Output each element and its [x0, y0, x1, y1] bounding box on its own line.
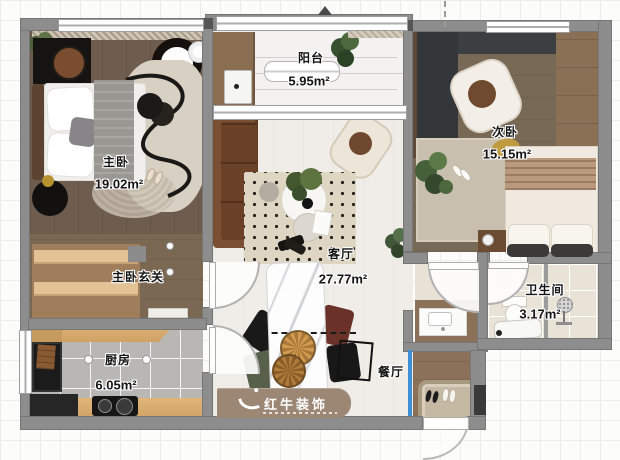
- drying-rack-line: [255, 57, 397, 58]
- wall-bottom-entry: [467, 416, 486, 430]
- burner-icon: [98, 399, 112, 413]
- label-master-bedroom-name: 主卧: [103, 156, 129, 168]
- shower-base: [556, 322, 572, 325]
- hall-cabinet: [128, 246, 146, 262]
- door-leaf: [209, 327, 216, 374]
- window-master: [58, 19, 204, 32]
- label-bathroom-name: 卫生间: [525, 284, 564, 296]
- stool: [137, 93, 163, 119]
- plant: [327, 32, 363, 72]
- label-kitchen-area: 6.05m²: [95, 379, 136, 392]
- wall-mid-left-lower: [202, 372, 213, 418]
- cutting-board: [36, 344, 56, 369]
- round-cushion: [468, 80, 496, 108]
- label-dining-room-name: 餐厅: [378, 366, 404, 378]
- wardrobe-wood: [556, 32, 598, 152]
- armchair-cushion: [349, 132, 372, 155]
- wall-bath-bottom: [477, 338, 612, 350]
- downlight-icon: [84, 355, 93, 364]
- label-living-room-area: 27.77m²: [319, 273, 367, 286]
- label-second-bedroom-area: 15.15m²: [483, 148, 531, 161]
- drain-dot: [496, 330, 502, 336]
- floor-plan: 主卧 19.02m² 阳台 5.95m² 次卧 15.15m² 客厅 27.77…: [0, 0, 620, 460]
- gold-decor: [42, 175, 54, 187]
- faucet-icon: [441, 327, 445, 331]
- curtain: [348, 30, 404, 38]
- kitchen-appliance: [30, 394, 78, 418]
- blanket-folds: [505, 158, 596, 190]
- downlight-icon: [142, 355, 151, 364]
- watermark-brand-text: 红牛装饰: [264, 394, 328, 413]
- wall-mid-left-upper: [202, 18, 213, 262]
- sink-basin: [428, 312, 452, 326]
- cup: [482, 234, 494, 246]
- wall-hall-kitchen: [28, 318, 207, 330]
- wall-second-bedroom-left: [403, 20, 413, 252]
- downlight-icon: [166, 242, 174, 250]
- door-leaf: [423, 417, 469, 430]
- plant: [413, 150, 457, 204]
- label-second-bedroom-name: 次卧: [492, 126, 518, 138]
- pendant-lamp-icon: [272, 354, 306, 388]
- label-balcony-area: 5.95m²: [288, 75, 329, 88]
- label-living-room-name: 客厅: [328, 248, 354, 260]
- downlight-icon: [166, 268, 174, 276]
- dining-chair-frame: [336, 340, 373, 382]
- slippers: [452, 162, 474, 182]
- side-stool: [259, 182, 279, 202]
- label-balcony-name: 阳台: [298, 52, 324, 64]
- door-leaf: [209, 262, 216, 309]
- label-master-bedroom-area: 19.02m²: [95, 178, 143, 191]
- door-leaf: [488, 262, 529, 269]
- brand-bull-logo-icon: [238, 393, 260, 413]
- burner-icon: [116, 398, 133, 415]
- shower-partition: [544, 263, 548, 341]
- dimension-dashed-line: [444, 1, 446, 27]
- shoe-cabinet: [474, 385, 486, 415]
- threshold: [148, 308, 188, 318]
- desk-chair: [52, 46, 86, 80]
- wall-bed2-bottom-a: [403, 252, 428, 264]
- headboard-cushion: [551, 244, 593, 257]
- headboard-cushion: [507, 244, 549, 257]
- hall-wardrobe-panel: [34, 282, 138, 296]
- door-leaf: [428, 262, 479, 270]
- window-kitchen: [19, 330, 32, 394]
- hall-wardrobe-panel: [34, 250, 138, 264]
- wall-right: [598, 20, 612, 350]
- bed-headboard: [32, 84, 44, 180]
- watermark-caption-line: [263, 412, 337, 414]
- north-arrow-icon: [318, 6, 332, 15]
- wall-hall-stub: [403, 310, 413, 346]
- watermark-sideboard: 红牛装饰: [217, 388, 351, 418]
- glass-partition: [408, 350, 412, 416]
- label-kitchen-name: 厨房: [105, 354, 131, 366]
- washing-machine-door-icon: [234, 84, 239, 89]
- slippers: [147, 168, 169, 188]
- window-second-bedroom: [486, 21, 570, 33]
- label-bathroom-area: 3.17m²: [519, 308, 560, 321]
- drying-rack-line: [255, 89, 397, 90]
- wall-bottom-main: [20, 416, 423, 430]
- kettle: [302, 198, 313, 209]
- shoes: [426, 388, 456, 412]
- label-master-hall-name: 主卧玄关: [112, 271, 164, 283]
- window-balcony: [216, 16, 408, 31]
- balcony-sliding-door: [213, 105, 407, 120]
